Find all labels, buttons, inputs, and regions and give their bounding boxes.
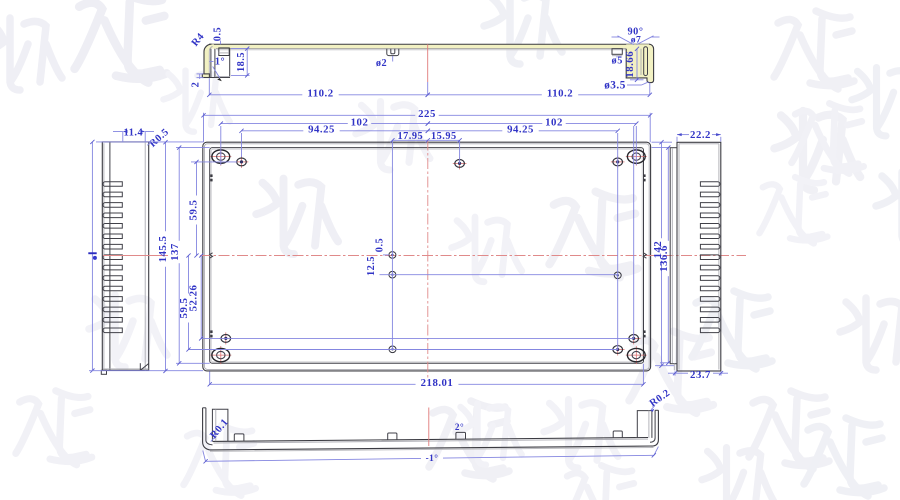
- svg-text:218.01: 218.01: [421, 377, 454, 389]
- svg-text:94.25: 94.25: [507, 124, 534, 136]
- svg-text:ø3.5: ø3.5: [604, 80, 626, 92]
- svg-text:12.5: 12.5: [366, 256, 377, 276]
- svg-text:1°: 1°: [215, 57, 225, 68]
- svg-text:-1°: -1°: [426, 453, 439, 463]
- svg-text:110.2: 110.2: [547, 88, 573, 100]
- svg-text:11.4: 11.4: [124, 127, 143, 138]
- svg-text:145.5: 145.5: [157, 236, 169, 263]
- svg-text:2°: 2°: [455, 422, 464, 432]
- svg-text:102: 102: [351, 116, 369, 128]
- svg-text:225: 225: [418, 108, 436, 120]
- svg-text:15.95: 15.95: [431, 131, 457, 142]
- svg-text:52.26: 52.26: [188, 285, 200, 312]
- svg-text:ø2: ø2: [376, 58, 387, 69]
- svg-text:94.25: 94.25: [308, 124, 335, 136]
- svg-text:0.5: 0.5: [375, 238, 386, 252]
- svg-text:110.2: 110.2: [307, 88, 333, 100]
- svg-text:18.5: 18.5: [236, 52, 247, 72]
- svg-text:18.66: 18.66: [624, 51, 636, 78]
- svg-text:2: 2: [191, 82, 202, 88]
- svg-text:136.6: 136.6: [658, 245, 670, 272]
- svg-text:137: 137: [169, 243, 181, 261]
- svg-text:22.2: 22.2: [690, 129, 711, 141]
- svg-text:102: 102: [545, 116, 563, 128]
- svg-text:59.5: 59.5: [187, 200, 199, 221]
- svg-text:0.5: 0.5: [213, 27, 224, 41]
- svg-text:17.95: 17.95: [397, 131, 423, 142]
- svg-text:23.7: 23.7: [690, 369, 711, 381]
